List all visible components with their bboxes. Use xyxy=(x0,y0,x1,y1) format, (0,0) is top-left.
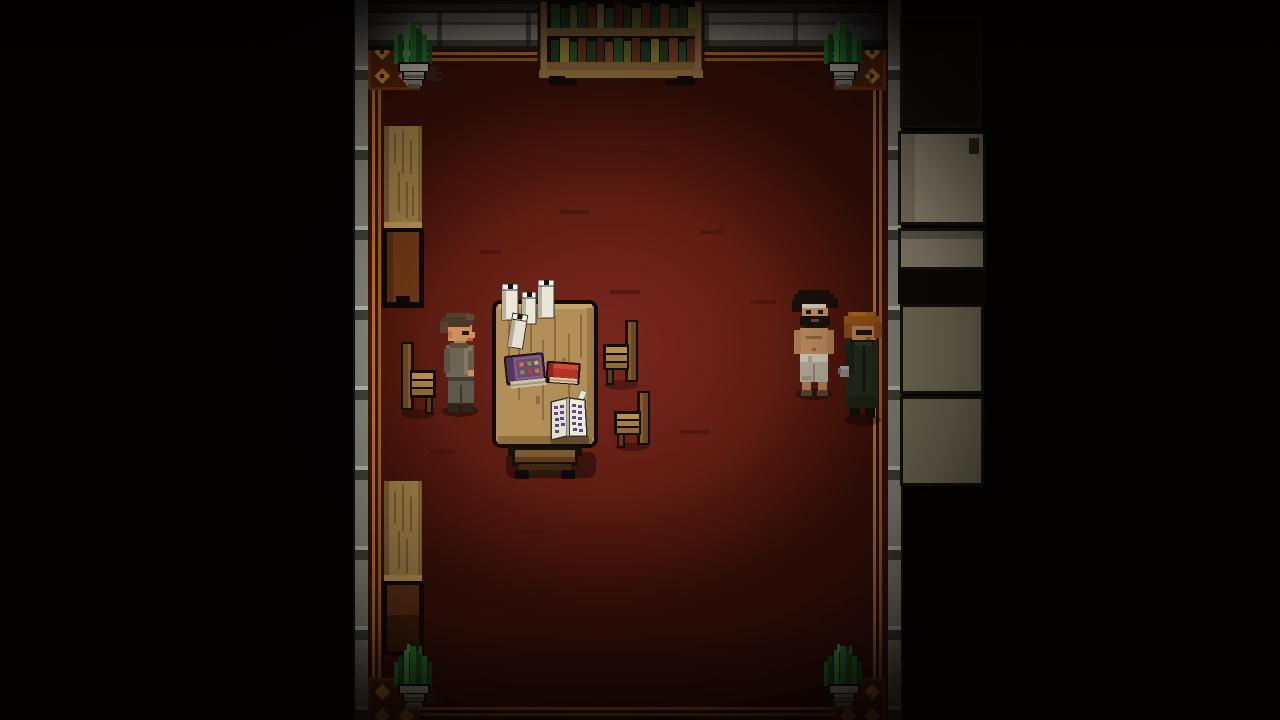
cabinet-panel-lower-2 xyxy=(900,396,984,486)
red-book xyxy=(545,360,583,388)
cabinet-panel-upper xyxy=(898,131,986,225)
panel-latch xyxy=(969,138,979,154)
open-manuscript xyxy=(547,390,593,448)
cabinet-panel-lower-1 xyxy=(900,304,984,394)
chair-right-upper xyxy=(601,320,643,390)
potted-plant xyxy=(816,22,872,94)
npc-shirtless-man xyxy=(790,286,840,402)
player-character xyxy=(436,304,482,418)
wooden-pillar-upper xyxy=(382,126,424,310)
chair-right-lower xyxy=(611,391,655,451)
chair-left xyxy=(396,342,438,420)
bookshelf xyxy=(537,0,705,86)
cabinet-panel-dark-top xyxy=(900,16,982,128)
wall-strip-left xyxy=(353,0,368,720)
potted-plant xyxy=(816,644,872,716)
wooden-pillar-lower xyxy=(382,481,424,657)
game-viewport[interactable] xyxy=(0,0,1280,720)
potted-plant xyxy=(386,22,442,94)
potted-plant xyxy=(386,644,442,716)
npc-coated-man xyxy=(838,310,886,426)
candles xyxy=(498,280,558,352)
cabinet-panel-middle xyxy=(898,228,986,270)
purple-tome xyxy=(503,350,549,392)
hallway-cabinet xyxy=(898,0,990,500)
cabinet-gap-dark xyxy=(898,270,986,304)
